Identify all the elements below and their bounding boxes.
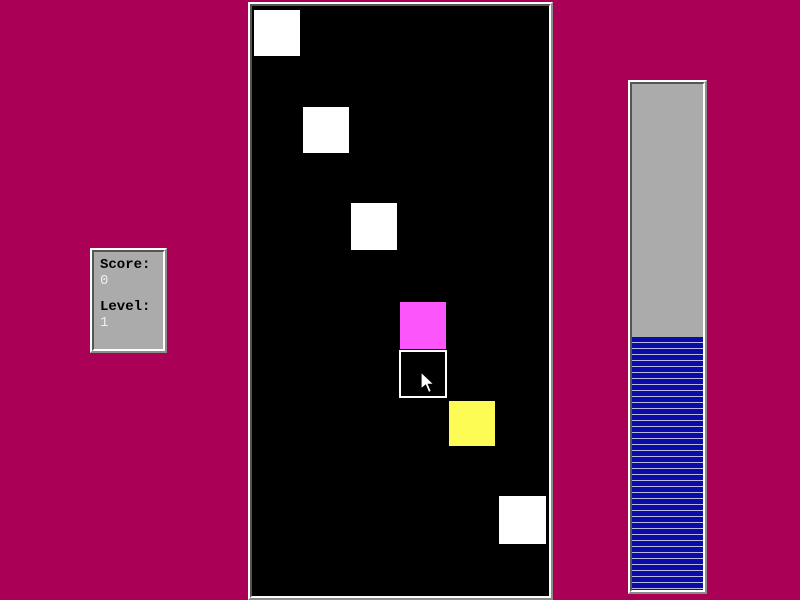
game-field-area[interactable] bbox=[250, 4, 551, 598]
white-block-2[interactable] bbox=[303, 107, 349, 153]
white-block-4[interactable] bbox=[499, 496, 546, 544]
cursor-icon bbox=[420, 371, 436, 395]
yellow-block[interactable] bbox=[449, 401, 495, 446]
progress-fill bbox=[632, 337, 703, 590]
level-value: 1 bbox=[100, 315, 150, 331]
score-value: 0 bbox=[100, 273, 150, 289]
game-field[interactable] bbox=[248, 2, 553, 600]
game-screen: { "app": {"name": "falling-blocks-game"}… bbox=[0, 0, 800, 600]
score-panel-face: Score: 0 Level: 1 bbox=[92, 250, 165, 351]
progress-bar bbox=[628, 80, 707, 594]
score-panel: Score: 0 Level: 1 bbox=[90, 248, 167, 353]
level-label: Level: bbox=[100, 299, 150, 315]
white-block-3[interactable] bbox=[351, 203, 397, 250]
score-label: Score: bbox=[100, 257, 150, 273]
magenta-block[interactable] bbox=[400, 302, 446, 349]
score-panel-text: Score: 0 Level: 1 bbox=[100, 257, 150, 331]
progress-track bbox=[630, 82, 705, 592]
white-block-1[interactable] bbox=[254, 10, 300, 56]
